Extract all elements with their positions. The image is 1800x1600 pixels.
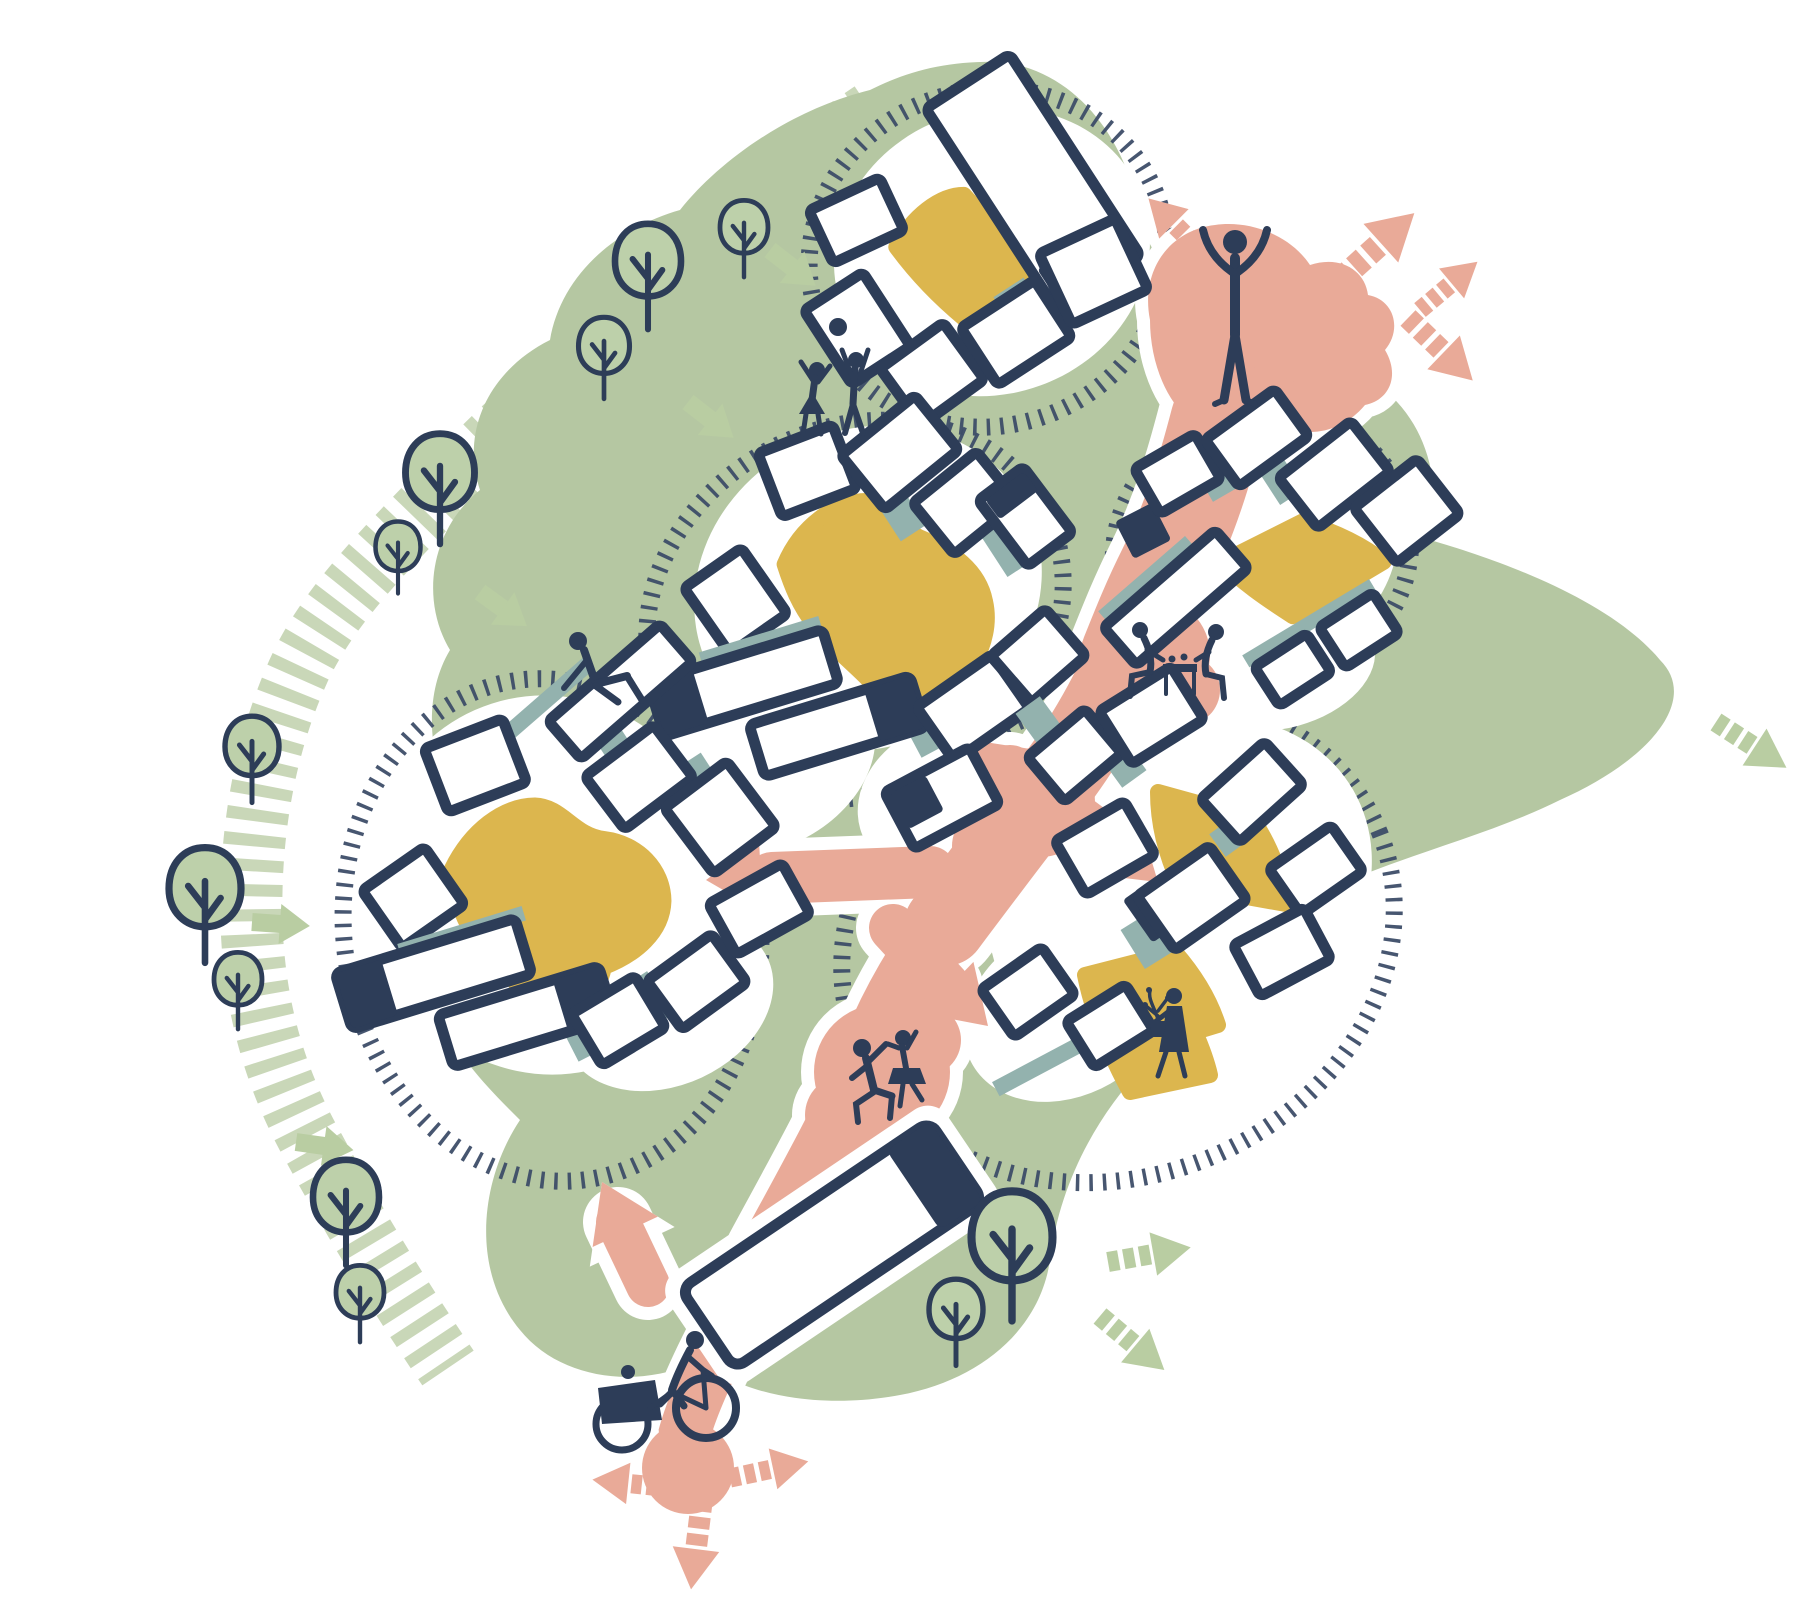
masterplan-diagram: [0, 0, 1800, 1600]
pink-dashed-arrow-se: [1392, 301, 1489, 397]
cargo-box-icon: [598, 1380, 662, 1424]
pink-dashed-arrow-ne2: [1407, 247, 1490, 325]
masterplan-svg: [0, 0, 1800, 1600]
